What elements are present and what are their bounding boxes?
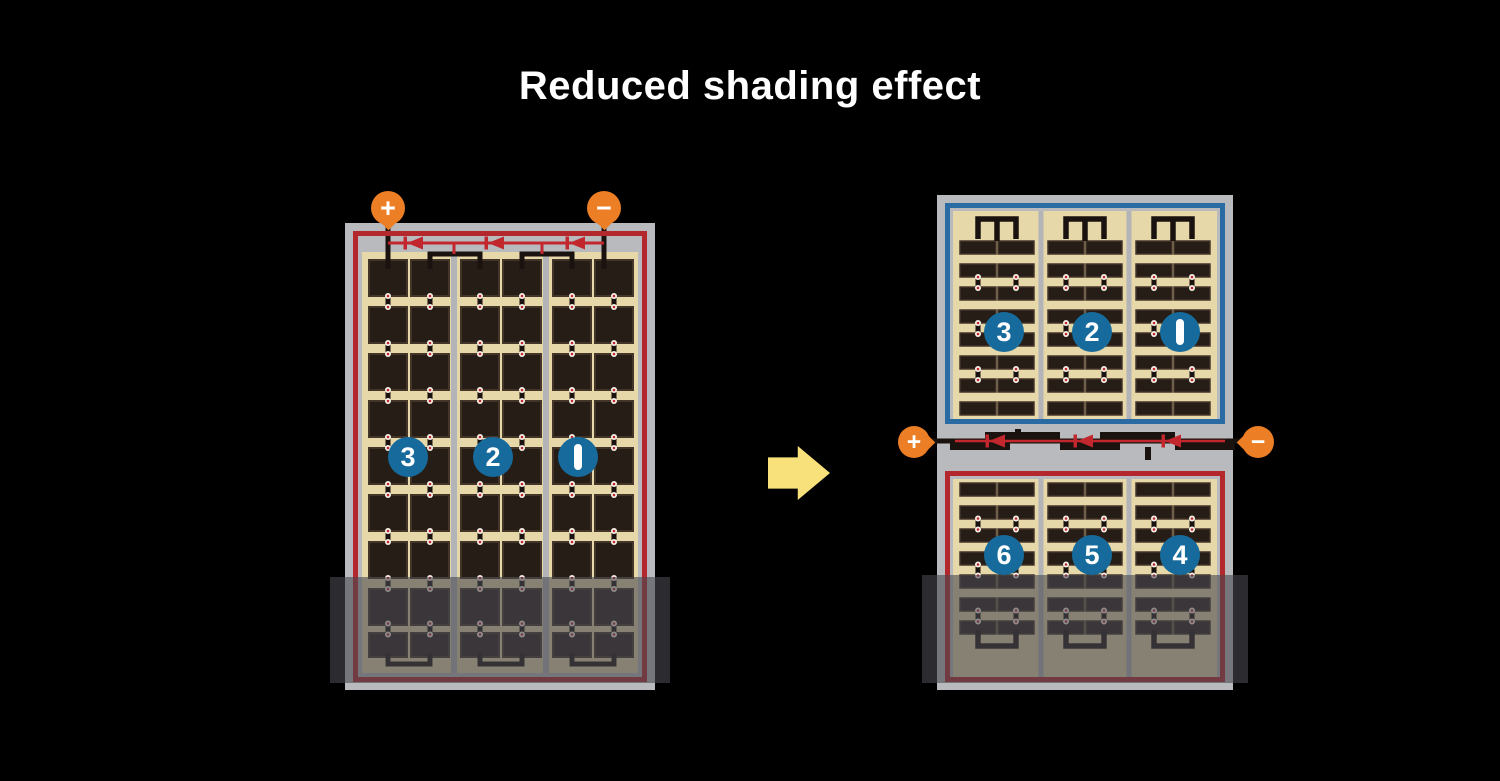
minus-terminal-before: − xyxy=(587,191,621,225)
plus-terminal-after: + xyxy=(898,426,930,458)
junction-bus xyxy=(895,429,1285,465)
plus-label: + xyxy=(380,195,396,222)
minus-terminal-after: − xyxy=(1242,426,1274,458)
diagram-canvas: Reduced shading effect + − 3 2 1 3 2 1 +… xyxy=(0,0,1500,781)
string-badge-5-after: 5 xyxy=(1072,535,1112,575)
transform-arrow-icon xyxy=(768,446,830,500)
minus-label: − xyxy=(1251,430,1266,455)
minus-label: − xyxy=(596,195,612,222)
shade-overlay-before xyxy=(330,577,670,683)
string-badge-3-after: 3 xyxy=(984,312,1024,352)
string-badge-6-after: 6 xyxy=(984,535,1024,575)
string-badge-2-after: 2 xyxy=(1072,312,1112,352)
shade-overlay-after xyxy=(922,575,1248,683)
string-badge-2-before: 2 xyxy=(473,437,513,477)
page-title: Reduced shading effect xyxy=(0,64,1500,109)
string-badge-1-before: 1 xyxy=(558,437,598,477)
plus-label: + xyxy=(907,430,922,455)
string-badge-1-after: 1 xyxy=(1160,312,1200,352)
plus-terminal-before: + xyxy=(371,191,405,225)
string-badge-4-after: 4 xyxy=(1160,535,1200,575)
string-badge-3-before: 3 xyxy=(388,437,428,477)
